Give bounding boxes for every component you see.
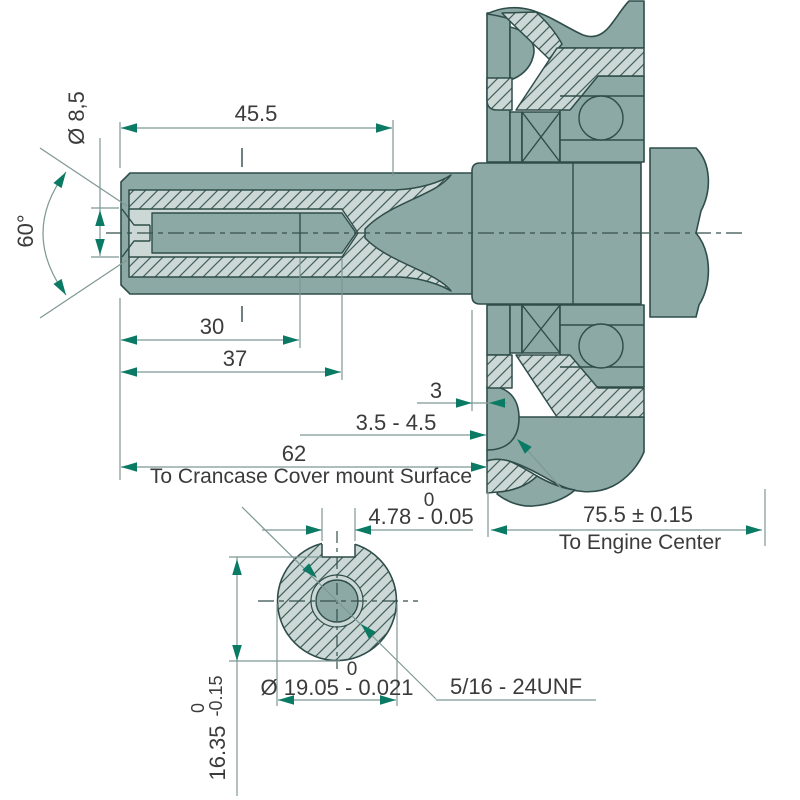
keyway-slot	[322, 535, 355, 557]
dim-full-thread-depth-label: 30	[200, 314, 224, 339]
dim-keyway-width-label: 4.78 - 0.05	[368, 504, 473, 529]
dim-shaft-diameter-label: Ø 19.05 - 0.021	[261, 675, 414, 700]
cover-piece-top	[487, 78, 512, 110]
dim-keyway-depth-tol-upper-label: 0	[188, 703, 208, 713]
dim-seal-working-range-label: 3.5 - 4.5	[356, 410, 437, 435]
dim-seal-offset-label: 3	[430, 378, 442, 403]
dim-shaft-length-label: 62	[282, 441, 306, 466]
dim-shaft-length-note: To Crancase Cover mount Surface	[150, 465, 472, 488]
bearing-ball-bottom	[579, 324, 623, 368]
dim-thread-spec-label: 5/16 - 24UNF	[450, 674, 582, 699]
drawing-page: Ø 8,5 45.5 60° 30 37 3 3.5 - 4.5 62 To C…	[0, 0, 800, 800]
dim-engine-center-note: To Engine Center	[559, 531, 721, 554]
dim-center-hole-angle-label: 60°	[13, 214, 38, 247]
cover-strip-bottom	[510, 305, 522, 353]
bearing-ball-top	[579, 96, 623, 140]
cover-wall-bottom	[487, 305, 510, 355]
cover-piece-bottom	[487, 355, 512, 388]
cover-strip-top	[510, 112, 522, 162]
dim-keyway-depth-tol-lower-label: -0.15	[206, 675, 226, 716]
technical-drawing-canvas: Ø 8,5 45.5 60° 30 37 3 3.5 - 4.5 62 To C…	[0, 0, 800, 800]
dim-keyway-depth-label: 16.35	[205, 725, 230, 780]
dim-thread-length-label: 45.5	[235, 101, 278, 126]
dim-end-diameter-label: Ø 8,5	[64, 91, 89, 145]
centerlines	[106, 233, 742, 669]
dim-engine-center-label: 75.5 ± 0.15	[583, 502, 693, 527]
dim-hole-depth-label: 37	[223, 346, 247, 371]
